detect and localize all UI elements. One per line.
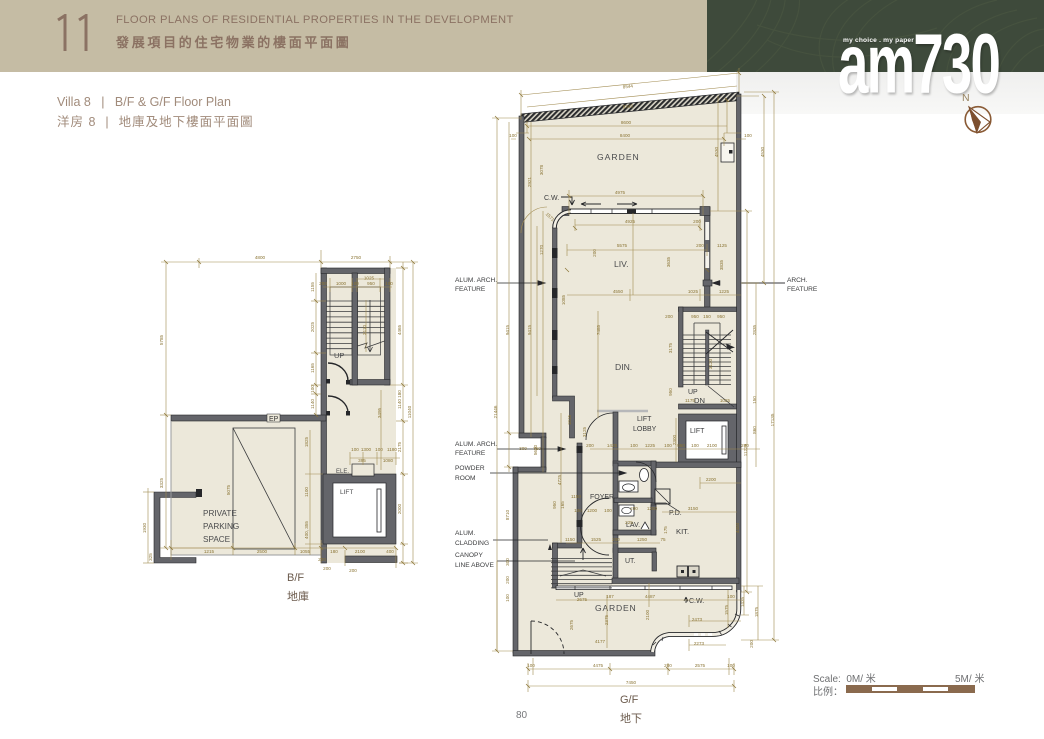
svg-text:UT.: UT.	[625, 558, 636, 565]
svg-text:ELE.: ELE.	[336, 469, 349, 475]
svg-text:2835: 2835	[752, 324, 757, 335]
svg-text:2200: 2200	[706, 477, 717, 482]
svg-text:7485: 7485	[596, 324, 601, 335]
svg-text:POWDER: POWDER	[455, 465, 485, 472]
svg-text:ARCH.: ARCH.	[787, 277, 808, 284]
svg-text:200: 200	[319, 281, 327, 286]
svg-text:200: 200	[612, 537, 620, 542]
svg-text:1055: 1055	[300, 549, 311, 554]
svg-text:100: 100	[351, 281, 359, 286]
svg-text:4975: 4975	[615, 190, 626, 195]
svg-text:FEATURE: FEATURE	[787, 286, 818, 293]
svg-text:100: 100	[505, 594, 510, 602]
svg-text:165: 165	[560, 501, 565, 509]
svg-text:8600: 8600	[621, 120, 632, 125]
svg-text:UP: UP	[334, 351, 344, 360]
svg-text:1000: 1000	[336, 281, 347, 286]
svg-text:3078: 3078	[539, 164, 544, 175]
svg-text:9415: 9415	[505, 324, 510, 335]
svg-text:1225: 1225	[645, 443, 656, 448]
svg-text:1435: 1435	[740, 596, 745, 607]
svg-text:2473: 2473	[692, 617, 703, 622]
svg-text:2921: 2921	[527, 176, 532, 187]
svg-text:2175: 2175	[397, 441, 402, 452]
svg-text:3125: 3125	[582, 426, 587, 437]
svg-text:100: 100	[527, 663, 535, 668]
svg-text:225: 225	[625, 520, 633, 525]
svg-text:1140: 1140	[397, 399, 402, 409]
svg-text:150: 150	[752, 396, 757, 404]
svg-text:1300: 1300	[361, 447, 372, 452]
svg-text:ALUM. ARCH.: ALUM. ARCH.	[455, 277, 497, 284]
svg-text:1175: 1175	[685, 398, 695, 403]
svg-text:3835: 3835	[719, 259, 724, 270]
svg-text:1025: 1025	[364, 276, 375, 281]
svg-text:1525: 1525	[591, 537, 602, 542]
svg-text:200: 200	[630, 506, 638, 511]
svg-text:4925: 4925	[625, 219, 636, 224]
svg-text:2025: 2025	[310, 321, 315, 332]
svg-text:ALUM.: ALUM.	[455, 530, 475, 537]
svg-text:1165: 1165	[310, 363, 315, 373]
svg-text:1825: 1825	[304, 436, 309, 447]
svg-text:B/F: B/F	[287, 572, 304, 584]
svg-text:200: 200	[592, 249, 597, 257]
svg-text:CANOPY: CANOPY	[455, 552, 483, 559]
svg-text:PARKING: PARKING	[203, 522, 239, 531]
svg-text:860: 860	[752, 426, 757, 434]
svg-text:100: 100	[744, 133, 752, 138]
svg-text:200: 200	[586, 443, 594, 448]
svg-text:4177: 4177	[595, 639, 606, 644]
svg-text:300: 300	[519, 446, 527, 451]
svg-text:2100: 2100	[645, 609, 650, 620]
svg-text:180: 180	[330, 549, 338, 554]
svg-text:300: 300	[505, 558, 510, 566]
svg-text:2575: 2575	[695, 663, 706, 668]
svg-text:200: 200	[505, 576, 510, 584]
svg-text:1080: 1080	[383, 458, 394, 463]
svg-text:200: 200	[349, 568, 357, 573]
svg-text:1150: 1150	[571, 494, 581, 499]
svg-text:4530: 4530	[714, 146, 719, 157]
svg-text:100: 100	[375, 447, 383, 452]
svg-text:8400: 8400	[620, 133, 631, 138]
svg-text:200: 200	[696, 243, 704, 248]
svg-text:3325: 3325	[159, 477, 164, 488]
svg-text:1250: 1250	[637, 537, 648, 542]
svg-text:1930: 1930	[142, 522, 147, 533]
svg-text:750: 750	[533, 446, 541, 451]
svg-text:200: 200	[664, 663, 672, 668]
svg-text:75: 75	[660, 537, 666, 542]
svg-text:180: 180	[397, 390, 402, 398]
svg-text:950: 950	[677, 443, 685, 448]
svg-text:FOYER: FOYER	[590, 494, 614, 501]
svg-text:1250: 1250	[647, 506, 658, 511]
svg-text:200: 200	[318, 557, 326, 562]
svg-text:5575: 5575	[617, 243, 628, 248]
svg-text:2500: 2500	[257, 549, 268, 554]
svg-text:100: 100	[727, 594, 735, 599]
svg-text:950: 950	[668, 388, 673, 396]
svg-text:LIFT: LIFT	[690, 428, 705, 435]
svg-text:1270: 1270	[539, 244, 544, 255]
svg-text:2675: 2675	[569, 619, 574, 630]
svg-text:EP: EP	[269, 416, 279, 423]
svg-text:200: 200	[693, 219, 701, 224]
svg-text:3120: 3120	[708, 358, 713, 369]
svg-text:100: 100	[630, 443, 638, 448]
svg-text:175: 175	[663, 526, 668, 534]
svg-text:ALUM. ARCH.: ALUM. ARCH.	[455, 441, 497, 448]
svg-text:1025: 1025	[720, 398, 731, 403]
svg-text:G/F: G/F	[620, 694, 639, 706]
svg-text:100: 100	[727, 663, 735, 668]
svg-text:200: 200	[323, 566, 331, 571]
svg-text:100: 100	[310, 385, 315, 393]
svg-text:1200: 1200	[587, 508, 598, 513]
svg-text:地下: 地下	[620, 712, 642, 725]
svg-text:DIN.: DIN.	[615, 362, 632, 372]
svg-text:UP: UP	[688, 389, 698, 396]
svg-text:PRIVATE: PRIVATE	[203, 509, 237, 518]
svg-text:950: 950	[552, 501, 557, 509]
svg-text:2375: 2375	[604, 614, 609, 625]
svg-text:LINE ABOVE: LINE ABOVE	[455, 562, 494, 569]
svg-text:4530: 4530	[760, 146, 765, 157]
svg-text:100: 100	[574, 508, 582, 513]
svg-text:3635: 3635	[666, 256, 671, 267]
svg-text:GARDEN: GARDEN	[597, 152, 640, 162]
svg-text:100: 100	[604, 508, 612, 513]
svg-text:4487: 4487	[645, 594, 656, 599]
svg-text:187: 187	[606, 594, 614, 599]
svg-text:1215: 1215	[204, 549, 215, 554]
svg-text:LOBBY: LOBBY	[633, 426, 657, 433]
svg-text:2300: 2300	[672, 434, 677, 445]
svg-text:2000: 2000	[397, 503, 402, 514]
svg-text:200: 200	[741, 443, 749, 448]
svg-text:100: 100	[691, 443, 699, 448]
svg-text:3110: 3110	[362, 325, 367, 335]
svg-text:2100: 2100	[355, 549, 366, 554]
svg-text:KIT.: KIT.	[676, 527, 689, 536]
svg-text:C.W.: C.W.	[689, 598, 704, 605]
svg-text:ROOM: ROOM	[455, 475, 476, 482]
svg-text:21446: 21446	[493, 405, 498, 418]
svg-text:7450: 7450	[626, 680, 637, 685]
svg-text:100: 100	[351, 447, 359, 452]
svg-text:1815: 1815	[567, 414, 572, 425]
svg-text:950: 950	[691, 314, 699, 319]
svg-text:1180: 1180	[387, 447, 397, 452]
svg-text:地庫: 地庫	[287, 589, 309, 603]
svg-text:LIFT: LIFT	[637, 416, 652, 423]
svg-text:9415: 9415	[527, 324, 532, 335]
svg-text:2100: 2100	[707, 443, 718, 448]
svg-text:4800: 4800	[255, 255, 266, 260]
svg-text:8343: 8343	[623, 103, 634, 109]
svg-text:8710: 8710	[505, 509, 510, 520]
svg-text:P.D.: P.D.	[669, 510, 682, 517]
svg-text:5785: 5785	[159, 334, 164, 345]
svg-text:8544: 8544	[623, 83, 634, 89]
svg-text:3150: 3150	[688, 506, 699, 511]
svg-text:100: 100	[509, 133, 517, 138]
svg-text:1125: 1125	[717, 243, 727, 248]
svg-text:3495: 3495	[377, 407, 382, 418]
svg-text:GARDEN: GARDEN	[595, 603, 637, 613]
svg-text:1575: 1575	[724, 604, 729, 615]
svg-text:950: 950	[367, 281, 375, 286]
svg-text:4725: 4725	[557, 474, 562, 485]
svg-text:100: 100	[385, 281, 393, 286]
svg-text:1085: 1085	[561, 294, 566, 305]
svg-text:4475: 4475	[593, 663, 604, 668]
svg-text:4400: 4400	[735, 522, 740, 533]
svg-text:CLADDING: CLADDING	[455, 540, 489, 547]
svg-text:400: 400	[386, 549, 394, 554]
svg-text:150: 150	[703, 314, 711, 319]
svg-text:5075: 5075	[226, 484, 231, 495]
svg-text:200: 200	[749, 640, 754, 648]
svg-text:2750: 2750	[351, 255, 362, 260]
svg-text:LIFT: LIFT	[340, 489, 353, 496]
svg-text:1150: 1150	[565, 537, 575, 542]
svg-text:4465: 4465	[397, 324, 402, 335]
svg-text:400, 355: 400, 355	[304, 521, 309, 539]
svg-text:LIV.: LIV.	[614, 259, 629, 269]
svg-text:SPACE: SPACE	[203, 535, 231, 544]
svg-text:1875: 1875	[754, 606, 759, 617]
svg-text:1425: 1425	[607, 443, 618, 448]
svg-text:DN: DN	[694, 396, 705, 405]
svg-text:1140: 1140	[310, 399, 315, 409]
svg-text:4550: 4550	[613, 289, 624, 294]
svg-text:325: 325	[148, 553, 153, 561]
svg-text:1155: 1155	[310, 282, 315, 292]
svg-text:17135: 17135	[770, 413, 775, 426]
svg-text:200: 200	[665, 314, 673, 319]
svg-text:1025: 1025	[688, 289, 699, 294]
svg-text:2675: 2675	[577, 597, 588, 602]
svg-text:FEATURE: FEATURE	[455, 450, 486, 457]
svg-text:3175: 3175	[668, 342, 673, 353]
svg-text:11040: 11040	[407, 405, 412, 418]
svg-text:395: 395	[358, 458, 366, 463]
svg-text:1225: 1225	[719, 289, 730, 294]
svg-text:C.W.: C.W.	[544, 195, 559, 202]
svg-text:2273: 2273	[694, 641, 705, 646]
svg-text:1100: 1100	[304, 487, 309, 497]
svg-text:FEATURE: FEATURE	[455, 286, 486, 293]
svg-text:950: 950	[717, 314, 725, 319]
